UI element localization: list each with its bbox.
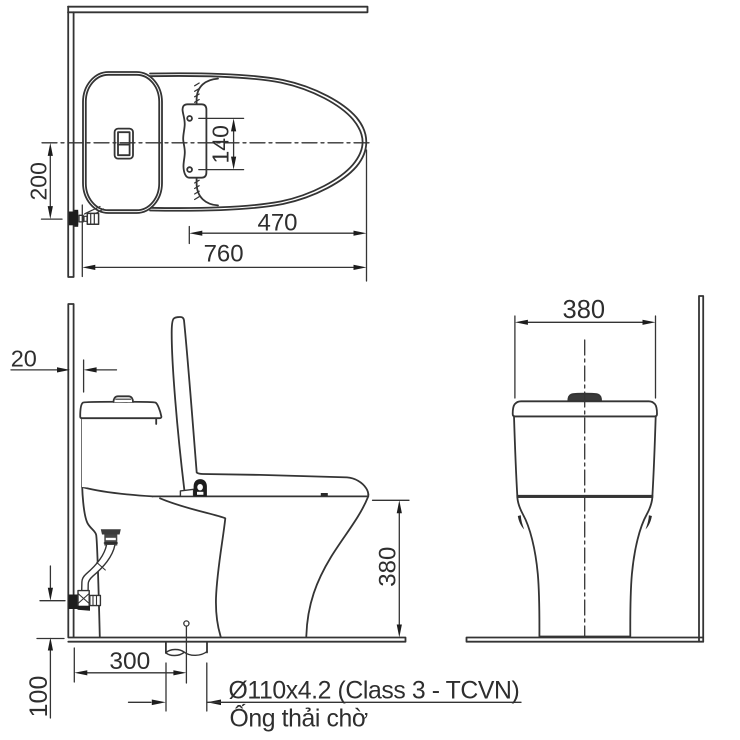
svg-text:140: 140 — [207, 125, 233, 163]
svg-text:200: 200 — [25, 162, 51, 200]
svg-text:300: 300 — [109, 648, 150, 675]
svg-text:380: 380 — [375, 547, 402, 587]
svg-text:380: 380 — [563, 296, 606, 324]
svg-text:Ống thải chờ: Ống thải chờ — [230, 705, 368, 733]
svg-text:470: 470 — [257, 210, 297, 237]
svg-text:100: 100 — [25, 676, 53, 718]
svg-text:Ø110x4.2 (Class 3 - TCVN): Ø110x4.2 (Class 3 - TCVN) — [229, 678, 520, 705]
svg-text:20: 20 — [11, 345, 37, 371]
svg-text:760: 760 — [204, 241, 244, 268]
